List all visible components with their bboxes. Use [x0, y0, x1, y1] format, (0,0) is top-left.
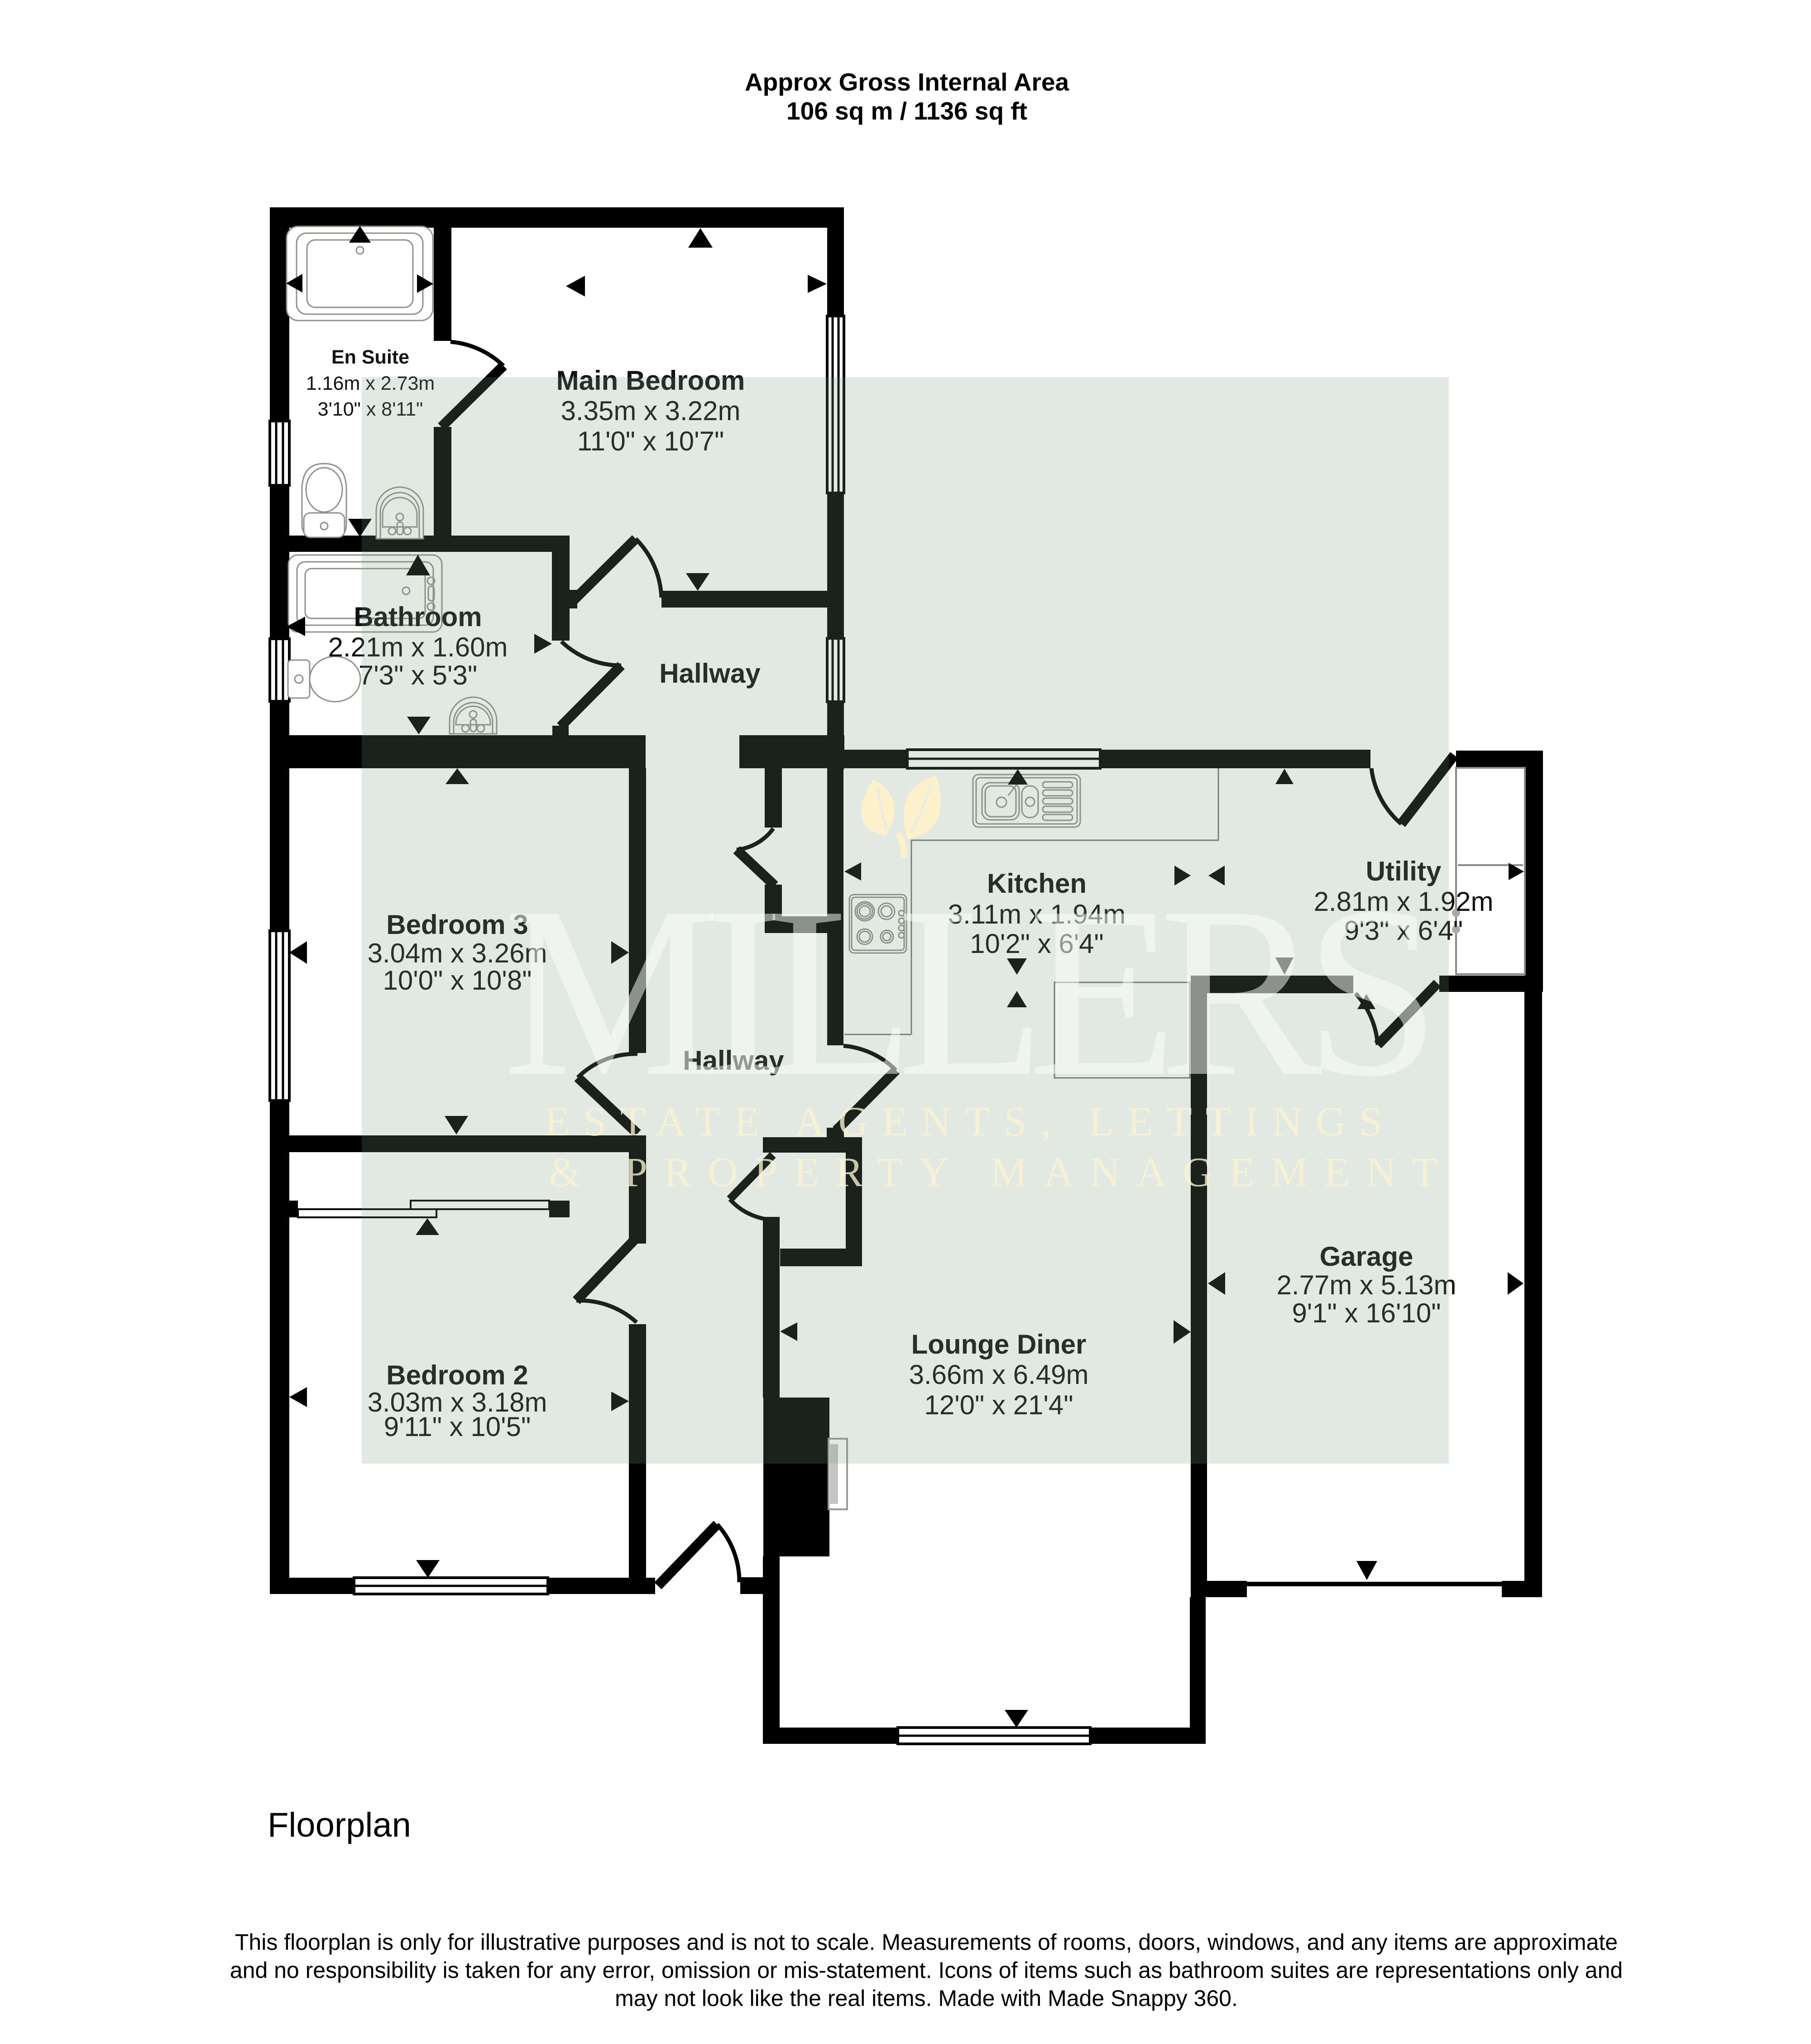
- svg-text:106 sq m / 1136 sq ft: 106 sq m / 1136 sq ft: [786, 97, 1027, 125]
- svg-text:Approx Gross Internal Area: Approx Gross Internal Area: [745, 68, 1069, 96]
- svg-text:may not look like the real ite: may not look like the real items. Made w…: [615, 1986, 1238, 2011]
- svg-text:ESTATE AGENTS, LETTINGS: ESTATE AGENTS, LETTINGS: [544, 1098, 1396, 1144]
- svg-text:This floorplan is only for ill: This floorplan is only for illustrative …: [235, 1929, 1618, 1955]
- svg-text:Floorplan: Floorplan: [268, 1806, 411, 1844]
- svg-text:MILLERS: MILLERS: [503, 856, 1427, 1127]
- svg-text:En Suite: En Suite: [331, 346, 409, 368]
- svg-text:and no responsibility is taken: and no responsibility is taken for any e…: [230, 1958, 1623, 1983]
- svg-text:& PROPERTY MANAGEMENT: & PROPERTY MANAGEMENT: [549, 1149, 1454, 1195]
